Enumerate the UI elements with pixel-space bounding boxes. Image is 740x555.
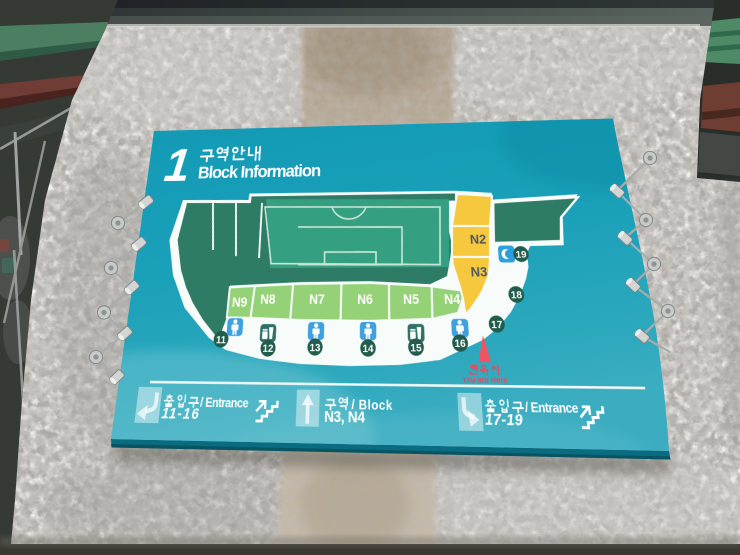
svg-text:N4: N4 xyxy=(444,293,462,308)
svg-text:Block Information: Block Information xyxy=(197,163,321,183)
svg-text:16: 16 xyxy=(454,337,467,350)
svg-text:15: 15 xyxy=(410,341,422,354)
svg-text:11-16: 11-16 xyxy=(161,406,200,423)
svg-text:N8: N8 xyxy=(260,293,277,308)
svg-text:N7: N7 xyxy=(309,293,325,308)
svg-text:N3, N4: N3, N4 xyxy=(324,410,365,428)
svg-text:/ Entrance: / Entrance xyxy=(200,395,250,411)
svg-text:1: 1 xyxy=(162,139,193,191)
svg-text:N3: N3 xyxy=(470,266,488,281)
svg-text:/ Entrance: / Entrance xyxy=(524,400,579,416)
svg-text:13: 13 xyxy=(309,341,321,354)
svg-text:N6: N6 xyxy=(357,293,373,308)
svg-text:17-19: 17-19 xyxy=(484,412,523,430)
svg-text:N5: N5 xyxy=(403,293,420,308)
svg-text:18: 18 xyxy=(510,289,523,301)
svg-text:You are Here: You are Here xyxy=(462,376,508,386)
svg-text:12: 12 xyxy=(262,342,274,355)
svg-text:N9: N9 xyxy=(231,296,248,311)
svg-text:19: 19 xyxy=(515,249,528,261)
svg-text:17: 17 xyxy=(491,318,503,331)
svg-text:14: 14 xyxy=(363,342,375,355)
svg-text:11: 11 xyxy=(216,333,228,345)
svg-text:N2: N2 xyxy=(470,233,488,247)
